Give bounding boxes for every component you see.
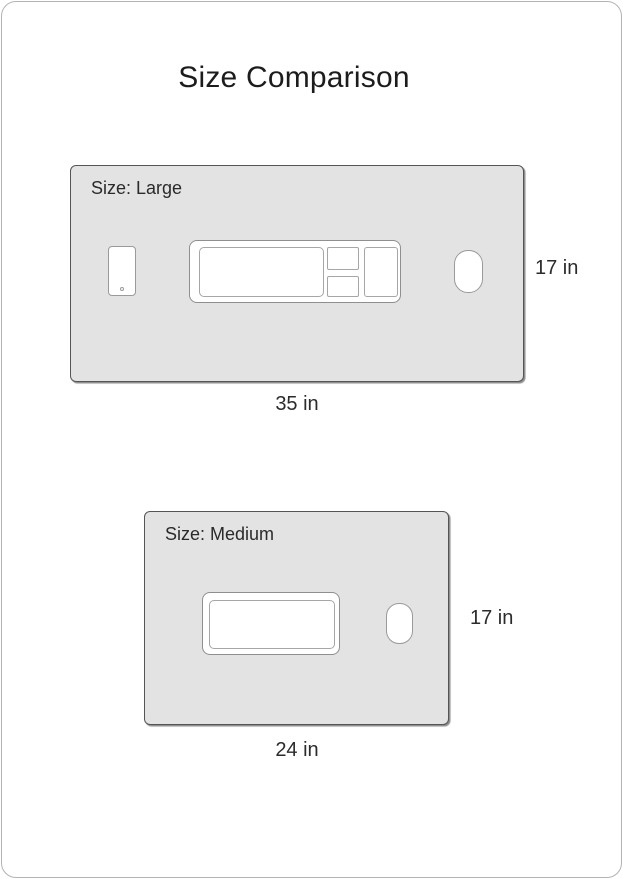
large-height-dimension: 17 in (535, 257, 578, 280)
medium-height-dimension: 17 in (470, 607, 513, 630)
oval-cutout (386, 603, 413, 644)
large-width-dimension: 35 in (275, 393, 318, 416)
small-bottom-window-cutout (327, 276, 359, 297)
switch-cutout (108, 246, 136, 296)
diagram-title: Size Comparison (178, 61, 409, 95)
multi-window-cutout (189, 240, 401, 303)
medium-width-dimension: 24 in (275, 739, 318, 762)
large-size-panel: Size: Large (70, 165, 524, 382)
framed-window-cutout (202, 592, 340, 655)
oval-cutout (454, 250, 483, 293)
medium-size-panel: Size: Medium (144, 511, 449, 725)
large-size-label: Size: Large (91, 178, 182, 199)
medium-size-label: Size: Medium (165, 524, 274, 545)
size-comparison-diagram: Size Comparison Size: Large 35 in 17 in … (0, 0, 623, 879)
inner-window-cutout (209, 600, 335, 649)
main-window-cutout (199, 247, 324, 297)
small-top-window-cutout (327, 247, 359, 270)
tall-window-cutout (364, 247, 398, 297)
screw-hole (120, 287, 124, 291)
